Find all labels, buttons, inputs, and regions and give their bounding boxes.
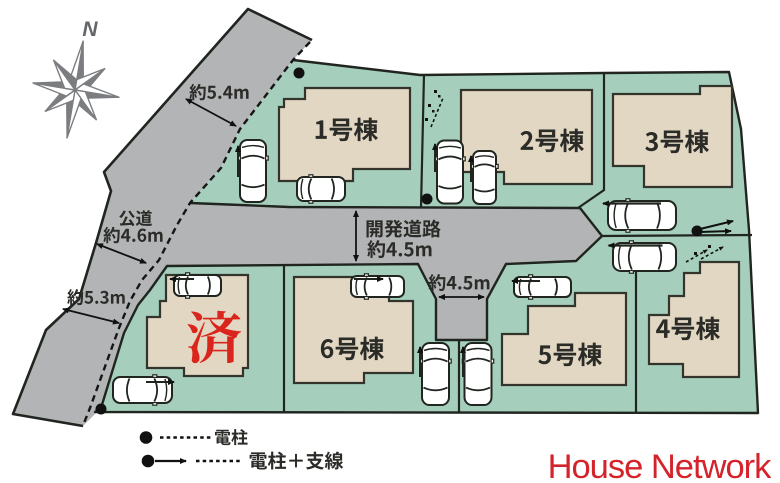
svg-text:N: N	[82, 18, 98, 41]
svg-text:House Network: House Network	[548, 448, 773, 483]
